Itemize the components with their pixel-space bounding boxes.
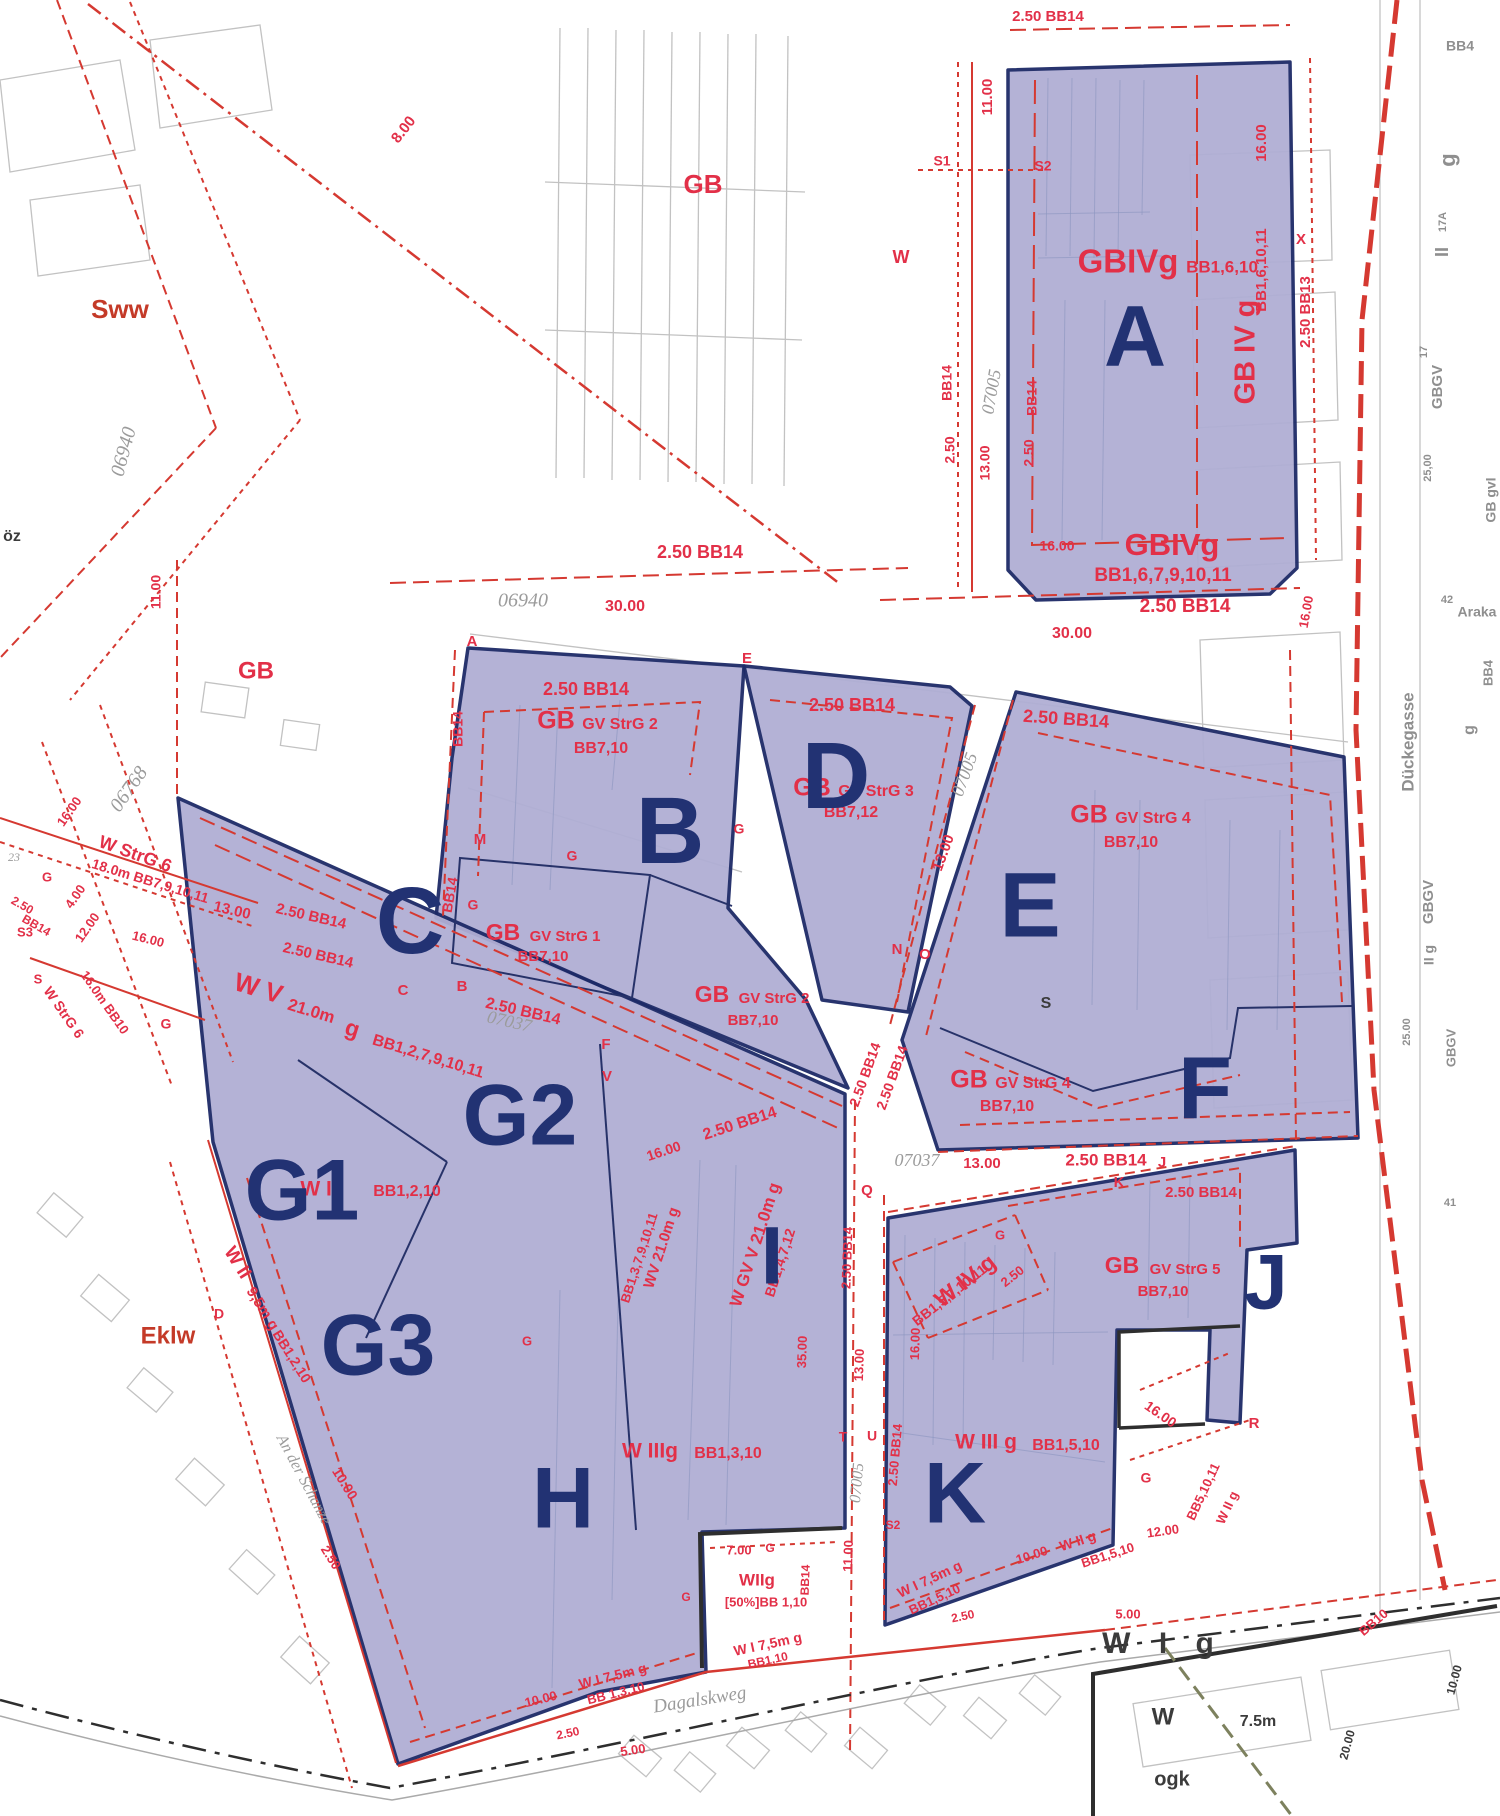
red-label-bb10: BB10 <box>1356 1606 1391 1639</box>
red-label-13-00: 13.00 <box>851 1348 867 1381</box>
red-label-g: G <box>567 848 578 864</box>
red-label-c: C <box>398 982 409 999</box>
red-label-bb14: BB14 <box>939 365 955 401</box>
city-label-bb4: BB4 <box>1446 38 1474 54</box>
base-map-texture-shape <box>545 182 805 192</box>
red-label-16-00: 16.00 <box>1253 124 1270 162</box>
zones-label-k: K <box>924 1446 986 1542</box>
red-plan-lines-shape <box>42 742 172 1086</box>
red-label-16-00: 16.00 <box>907 1327 923 1360</box>
base-map-texture-shape <box>176 1458 224 1506</box>
city-label-bb4: BB4 <box>1480 659 1495 686</box>
base-map-texture-shape <box>281 1636 329 1684</box>
red-label-s2: S2 <box>1034 158 1051 174</box>
red-label-gv-strg-5: GV StrG 5 <box>1150 1261 1221 1278</box>
city-label-41: 41 <box>1444 1197 1456 1209</box>
red-label-16-00: 16.00 <box>131 928 166 950</box>
gray-label-07005: 07005 <box>977 368 1005 416</box>
red-label-d: D <box>214 1306 224 1322</box>
zones-label-i: I <box>761 1211 784 1302</box>
red-label-g: G <box>42 869 52 884</box>
red-label-f: F <box>601 1036 610 1053</box>
road-lines-shape <box>1119 1424 1205 1428</box>
red-label-r: R <box>1249 1415 1260 1432</box>
base-map-texture-shape <box>150 25 272 128</box>
zones-label-g2: G2 <box>463 1068 578 1164</box>
base-map-texture-shape <box>1321 1650 1459 1730</box>
base-map-texture-shape <box>696 32 700 482</box>
red-label-gv-strg-2: GV StrG 2 <box>739 990 810 1007</box>
red-label-2-50-bb13: 2.50 BB13 <box>1297 276 1314 348</box>
dark-label--z: öz <box>3 528 21 545</box>
red-label-g: G <box>995 1227 1005 1242</box>
gray-label-23: 23 <box>8 850 20 864</box>
red-label-bb14: BB14 <box>450 711 466 747</box>
red-label-bb7-10: BB7,10 <box>574 740 628 757</box>
red-label-7-00: 7.00 <box>726 1542 751 1557</box>
red-label-q: Q <box>861 1182 873 1199</box>
base-map-texture-shape <box>280 720 319 751</box>
base-map-texture-shape <box>784 36 788 486</box>
city-label-d-ckegasse: Dückegasse <box>1398 692 1417 791</box>
zones-label-e: E <box>999 854 1060 956</box>
red-label-o: O <box>919 946 931 963</box>
gray-label-06940: 06940 <box>107 425 141 479</box>
red-label-gv-strg-4: GV StrG 4 <box>1115 810 1191 827</box>
city-label-gbgv: GBGV <box>1443 1029 1458 1068</box>
zoning-map-canvas: 0694006940067680700507005070370703707005… <box>0 0 1500 1816</box>
red-label-2-50-bb14: 2.50 BB14 <box>1165 1184 1237 1201</box>
dark-label-7-5m: 7.5m <box>1240 1713 1276 1730</box>
red-label-g: G <box>765 1541 774 1555</box>
red-label-gb: GB <box>950 1066 988 1094</box>
base-map-texture-shape <box>612 30 616 480</box>
red-label-5-00: 5.00 <box>1115 1606 1140 1621</box>
red-label-2-50: 2.50 <box>555 1724 581 1743</box>
gray-label-06768: 06768 <box>105 762 152 816</box>
red-label-t: T <box>839 1429 848 1445</box>
red-label-16-00: 16.00 <box>54 794 85 829</box>
red-label-j: J <box>1158 1154 1166 1171</box>
red-label-gb: GB <box>1070 801 1108 829</box>
red-label-w-iiig: W IIIg <box>622 1440 678 1463</box>
gray-label-06940: 06940 <box>498 590 548 612</box>
red-label-g: G <box>161 1016 172 1032</box>
red-plan-lines-shape <box>0 428 216 658</box>
red-label-s: S <box>34 971 43 986</box>
red-label-k: K <box>1114 1174 1125 1191</box>
red-label-2-50-bb14: 2.50 BB14 <box>543 679 629 699</box>
red-label-g: G <box>522 1333 532 1348</box>
red-label-bb7-10: BB7,10 <box>1104 834 1158 851</box>
red-label-u: U <box>867 1428 877 1444</box>
red-label-wiig: WIIg <box>739 1570 775 1589</box>
red-label-g: G <box>681 1590 690 1604</box>
zones-label-a: A <box>1104 289 1166 385</box>
zones-label-h: H <box>532 1451 594 1547</box>
red-label-v: V <box>602 1068 612 1085</box>
city-label-25-00: 25,00 <box>1422 454 1434 482</box>
dark-label-20-00: 20.00 <box>1337 1728 1358 1761</box>
dark-label-w-i-g: W I g <box>1102 1627 1224 1660</box>
city-label-25-00: 25.00 <box>1401 1018 1413 1046</box>
red-label-bb1-6-7-9-10-11: BB1,6,7,9,10,11 <box>1094 565 1232 586</box>
red-label-2-50-bb14: 2.50 BB14 <box>1065 1150 1147 1169</box>
base-map-texture-shape <box>584 28 588 478</box>
red-label-16-0m-bb10: 16.0m BB10 <box>78 968 133 1037</box>
gray-label-07037: 07037 <box>895 1150 941 1170</box>
zones-label-b: B <box>636 778 705 884</box>
base-map-texture-shape <box>963 1697 1006 1739</box>
red-label-gv-strg-4: GV StrG 4 <box>995 1075 1071 1092</box>
red-label-g: G <box>468 897 479 913</box>
red-label-2-50-bb14: 2.50 BB14 <box>1012 8 1084 25</box>
red-label-2-50: 2.50 <box>950 1607 976 1626</box>
zones-label-j: J <box>1244 1238 1287 1326</box>
base-map-texture-shape <box>674 1752 715 1792</box>
red-label-bb7-10: BB7,10 <box>1138 1283 1189 1300</box>
base-map-texture-shape <box>556 28 560 478</box>
red-plan-lines-shape <box>57 0 216 428</box>
red-label-w: W <box>893 247 910 267</box>
red-label-30-00: 30.00 <box>605 598 645 615</box>
zoning-map: 0694006940067680700507005070370703707005… <box>0 0 1500 1816</box>
red-label-2-50: 2.50 <box>942 436 958 463</box>
red-label-2-50-bb14: 2.50 BB14 <box>1140 596 1231 617</box>
red-label-bb7-10: BB7,10 <box>518 948 569 965</box>
red-label-gb: GB <box>537 707 575 735</box>
city-label-17a: 17A <box>1437 212 1449 232</box>
city-label-g: g <box>1461 725 1478 735</box>
red-label-2-50-bb14: 2.50 BB14 <box>657 542 743 562</box>
development-zones <box>178 62 1358 1764</box>
red-label-gb-iv-g: GB IV g <box>1230 300 1262 405</box>
red-label-gb: GB <box>486 919 521 945</box>
base-map-texture-shape <box>229 1550 275 1595</box>
red-label-gb: GB <box>684 169 723 199</box>
red-label-g: G <box>734 821 745 837</box>
red-label-gb: GB <box>238 657 274 684</box>
red-label-bb1-2-10: BB1,2,10 <box>373 1183 441 1200</box>
red-label-w-ii-g: W II g <box>1213 1489 1241 1527</box>
zones-label-f: F <box>1178 1038 1232 1137</box>
red-label-8-00: 8.00 <box>388 113 419 146</box>
zones-label-g3: G3 <box>321 1298 436 1394</box>
red-label-b: B <box>457 978 468 995</box>
red-label--50-bb-1-10: [50%]BB 1,10 <box>725 1594 807 1609</box>
red-label-g: G <box>1141 1470 1152 1486</box>
base-map-texture-shape <box>37 1193 83 1237</box>
red-label-12-00: 12.00 <box>72 910 103 945</box>
red-label-gv-strg-2: GV StrG 2 <box>582 716 658 733</box>
red-label-gbivg: GBIVg <box>1078 243 1179 280</box>
red-label-13-00: 13.00 <box>963 1155 1001 1172</box>
red-label-bb7-10: BB7,10 <box>728 1012 779 1029</box>
base-map-texture-shape <box>127 1368 173 1412</box>
base-map-texture-shape <box>752 34 756 484</box>
red-label-11-00: 11.00 <box>840 1540 856 1572</box>
base-map-texture-shape <box>30 185 150 276</box>
base-map-texture-shape <box>668 32 672 482</box>
gray-label-07005: 07005 <box>847 1462 867 1503</box>
red-label-16-00: 16.00 <box>1039 538 1074 554</box>
base-map-texture-shape <box>1019 1675 1060 1715</box>
base-map-texture-shape <box>81 1274 130 1321</box>
red-label-11-00: 11.00 <box>979 79 996 116</box>
red-label-bb7-10: BB7,10 <box>980 1098 1034 1115</box>
red-label-2-50-bb14: 2.50 BB14 <box>838 1226 855 1289</box>
city-label-42: 42 <box>1441 594 1453 606</box>
red-label-gb: GB <box>1105 1252 1140 1278</box>
red-label-bb14: BB14 <box>1024 380 1040 416</box>
city-label-17: 17 <box>1418 346 1430 358</box>
city-label-gbgv: GBGV <box>1429 365 1446 409</box>
city-base-labels: BB4gII17AGBGV1725,00GB gvI42ArakaDückega… <box>1398 38 1498 1209</box>
dark-label-s: S <box>1041 995 1052 1012</box>
red-label-2-50: 2.50 <box>1021 439 1037 466</box>
city-label-ii: II <box>1432 247 1452 257</box>
dark-label-ogk: ogk <box>1154 1768 1190 1790</box>
red-label-bb1-3-10: BB1,3,10 <box>694 1445 762 1462</box>
red-label-30-00: 30.00 <box>1052 625 1092 642</box>
red-label-gb: GB <box>695 981 730 1007</box>
red-label-n: N <box>892 941 903 958</box>
red-plan-lines-shape <box>1356 0 1445 1590</box>
red-label-2-50-bb14: 2.50 BB14 <box>809 695 895 715</box>
red-plan-lines-shape <box>130 2 300 420</box>
red-label-w-strg-6: W StrG 6 <box>41 983 88 1041</box>
red-label-s2: S2 <box>886 1518 901 1532</box>
red-label-gbivg: GBIVg <box>1125 527 1220 562</box>
red-label-13-00: 13.00 <box>977 445 993 480</box>
zones-label-g1: G1 <box>245 1143 360 1239</box>
red-label-bb1-6-10-11: BB1,6,10,11 <box>1253 228 1270 311</box>
red-label-11-00: 11.00 <box>148 575 164 609</box>
red-label-4-00: 4.00 <box>62 882 89 911</box>
red-label-12-00: 12.00 <box>1146 1521 1180 1540</box>
red-label-16-00: 16.00 <box>1296 594 1316 629</box>
red-label-a: A <box>467 633 478 650</box>
city-label-g: g <box>1435 153 1460 166</box>
city-label-araka: Araka <box>1458 604 1497 620</box>
red-plan-lines-shape <box>1010 25 1290 30</box>
city-label-ii-g: II g <box>1421 945 1437 965</box>
red-label-bb1-6-10: BB1,6,10 <box>1186 257 1258 276</box>
base-map-texture-shape <box>201 682 249 718</box>
dark-label-w: W <box>1152 1703 1175 1730</box>
zones-label-c: C <box>376 868 445 974</box>
city-label-gb-gvi: GB gvI <box>1483 477 1499 522</box>
red-label-s1: S1 <box>933 153 950 169</box>
brick-label-eklw: Eklw <box>141 1322 196 1349</box>
city-label-gbgv: GBGV <box>1420 880 1437 924</box>
red-label-x: X <box>1296 231 1306 248</box>
base-map-texture-shape <box>724 34 728 484</box>
gray-label-dagalskweg: Dagalskweg <box>651 1682 748 1718</box>
red-label-35-00: 35.00 <box>794 1335 810 1368</box>
red-label-bb1-5-10: BB1,5,10 <box>1032 1437 1100 1454</box>
red-label-e: E <box>742 650 752 667</box>
red-label-bb14: BB14 <box>798 1564 813 1595</box>
red-label-m: M <box>474 831 487 848</box>
base-map-texture-shape <box>640 30 644 480</box>
red-label-gv-strg-1: GV StrG 1 <box>530 928 601 945</box>
base-map-texture-shape <box>545 330 802 340</box>
zones-label-d: D <box>802 723 871 829</box>
brick-label-sww: Sww <box>91 294 150 324</box>
